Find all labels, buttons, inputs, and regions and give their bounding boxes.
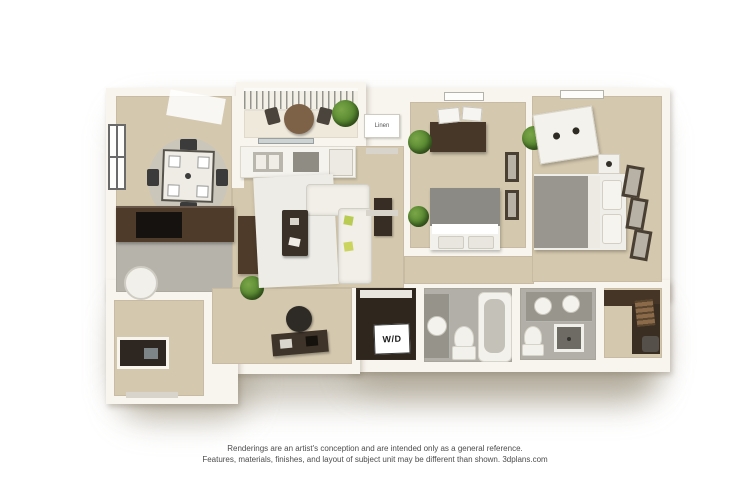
cooktop [293,152,319,172]
dining-table [161,149,215,203]
place-setting [196,185,208,197]
master-bed [534,174,626,250]
dining-chair-west [147,169,159,186]
kitchen-range [136,212,182,238]
nightstand-lamp [606,161,612,167]
ladder-shelf [635,299,656,327]
disclaimer-line-2: Features, materials, finishes, and layou… [0,455,750,465]
dresser-knob [572,127,580,135]
washer-dryer-label: W/D [373,323,410,354]
master-dresser [532,106,599,165]
bed2-pillow [438,236,464,249]
laptop [461,106,482,122]
desk-monitor [305,335,318,346]
coffee-table-tray [290,218,299,225]
place-setting [197,156,209,168]
linen-closet-label: Linen [364,114,400,138]
dresser-knob [553,132,561,140]
dining-window [108,124,126,190]
laundry-shelf [360,290,412,298]
kitchen-round-table [124,266,158,300]
magazine [288,237,300,247]
master-comforter [534,176,590,248]
bed2-comforter [430,188,500,226]
master-pillow [602,180,622,210]
sink-bowl [256,155,266,169]
closet-bench [642,336,659,352]
closet-storage-box [144,348,158,359]
dining-chair-east [216,169,228,186]
shower-drain [567,337,571,341]
bath2-vanity [526,292,592,322]
entry-coat-closet [120,340,166,366]
balcony-plant [332,100,359,127]
place-setting [167,184,179,196]
kitchen-counter-north [240,146,356,178]
bedroom2-wall-frame [505,152,519,182]
patio-table [284,104,314,134]
front-door-threshold [126,392,178,398]
sofa-pillow-green [343,241,353,251]
coffee-table [282,210,308,256]
bedroom2-plant [408,130,432,154]
bedroom2-wall-frame [505,190,519,220]
bedroom2-plant-2 [408,206,429,227]
bath2-sink [562,295,580,313]
bathtub-basin [484,299,505,353]
bath2-sink [534,297,552,315]
master-sheet-fold [588,176,600,248]
bath1-sink [427,316,447,336]
kitchen-sink [253,152,283,172]
desk-papers [280,339,293,349]
hallway-floor [404,256,534,284]
bed2-pillow [468,236,494,249]
place-setting [168,155,180,167]
refrigerator [329,149,353,176]
bedroom2-bed [430,188,500,250]
media-console [374,198,392,236]
sofa-pillow-green [343,215,353,225]
master-nightstand [598,154,620,174]
closet-door-seam [366,148,398,154]
balcony-sliding-door [258,138,314,144]
bed2-sheet-fold [432,224,498,234]
laptop [437,107,460,124]
closet-door-seam [366,210,398,216]
wall-entry-flex [204,300,212,364]
master-window [560,90,604,99]
sink-bowl [269,155,279,169]
shower [554,324,584,352]
bedroom2-dresser [430,122,486,152]
floor-plan-page: Linen W/D [0,0,750,502]
office-chair [286,306,312,332]
master-pillow [602,214,622,244]
bedroom2-window [444,92,484,101]
bath1-toilet-tank [452,346,476,360]
bath2-toilet-tank [522,344,544,356]
disclaimer-line-1: Renderings are an artist's conception an… [0,444,750,454]
table-centerpiece [185,173,191,179]
bathtub [478,292,512,362]
